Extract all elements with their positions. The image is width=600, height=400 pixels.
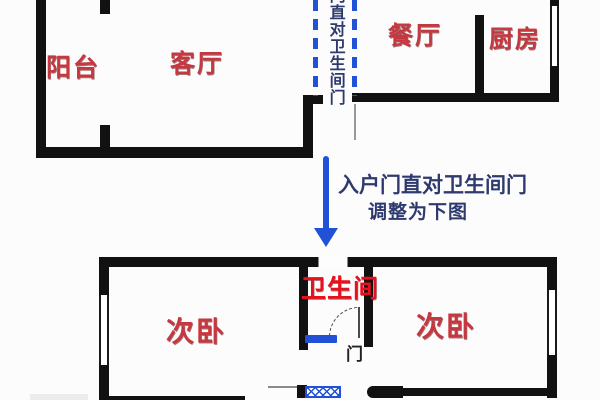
annotation-line1: 入户门直对卫生间门 [338,174,527,197]
living-room-label: 客厅 [170,52,224,77]
corridor-dashed-line-right [352,0,357,96]
floor-plan-diagram: 门直对卫生间门 阳台 客厅 餐厅 厨房 入户门直对卫生间门 调整为下图 门 卫生… [0,0,600,400]
down-arrow-icon [323,156,329,230]
down-arrow-head-icon [314,228,338,247]
kitchen-divider-wall [475,15,484,98]
lower-entry-door-gap [318,257,348,267]
upper-bottom-wall [36,147,313,158]
lower-top-wall-left [99,257,318,267]
corridor-dashed-line-left [313,0,318,96]
bedroom-left-label: 次卧 [166,318,226,346]
lower-right-window [547,290,557,355]
bottom-left-artifact [30,394,88,400]
balcony-divider-top [100,0,110,14]
bathroom-door-leaf [358,307,360,338]
corridor-vertical-note: 门直对卫生间门 [326,0,344,109]
lower-left-bottom-wall [108,396,245,400]
lower-top-wall-right [348,257,557,267]
kitchen-label: 厨房 [489,28,541,52]
corridor-wall-vertical [303,95,313,158]
balcony-divider-bottom [100,125,110,149]
balcony-label: 阳台 [46,56,100,81]
bottom-wall-thin [398,388,548,396]
bathroom-label: 卫生间 [301,277,379,302]
entry-door-leaf [354,104,356,140]
upper-left-wall [36,0,46,158]
upper-mid-wall [352,93,559,102]
bathroom-door-swing-arc [329,307,359,337]
bathroom-door-label: 门 [346,346,363,363]
bedroom-right-label: 次卧 [416,313,476,341]
lower-left-window [99,295,109,365]
bottom-window-hatch-icon [305,386,341,398]
dining-room-label: 餐厅 [388,24,442,49]
annotation-line2: 调整为下图 [368,203,468,224]
corridor-wall-stub [303,95,323,104]
upper-right-window [550,6,559,66]
